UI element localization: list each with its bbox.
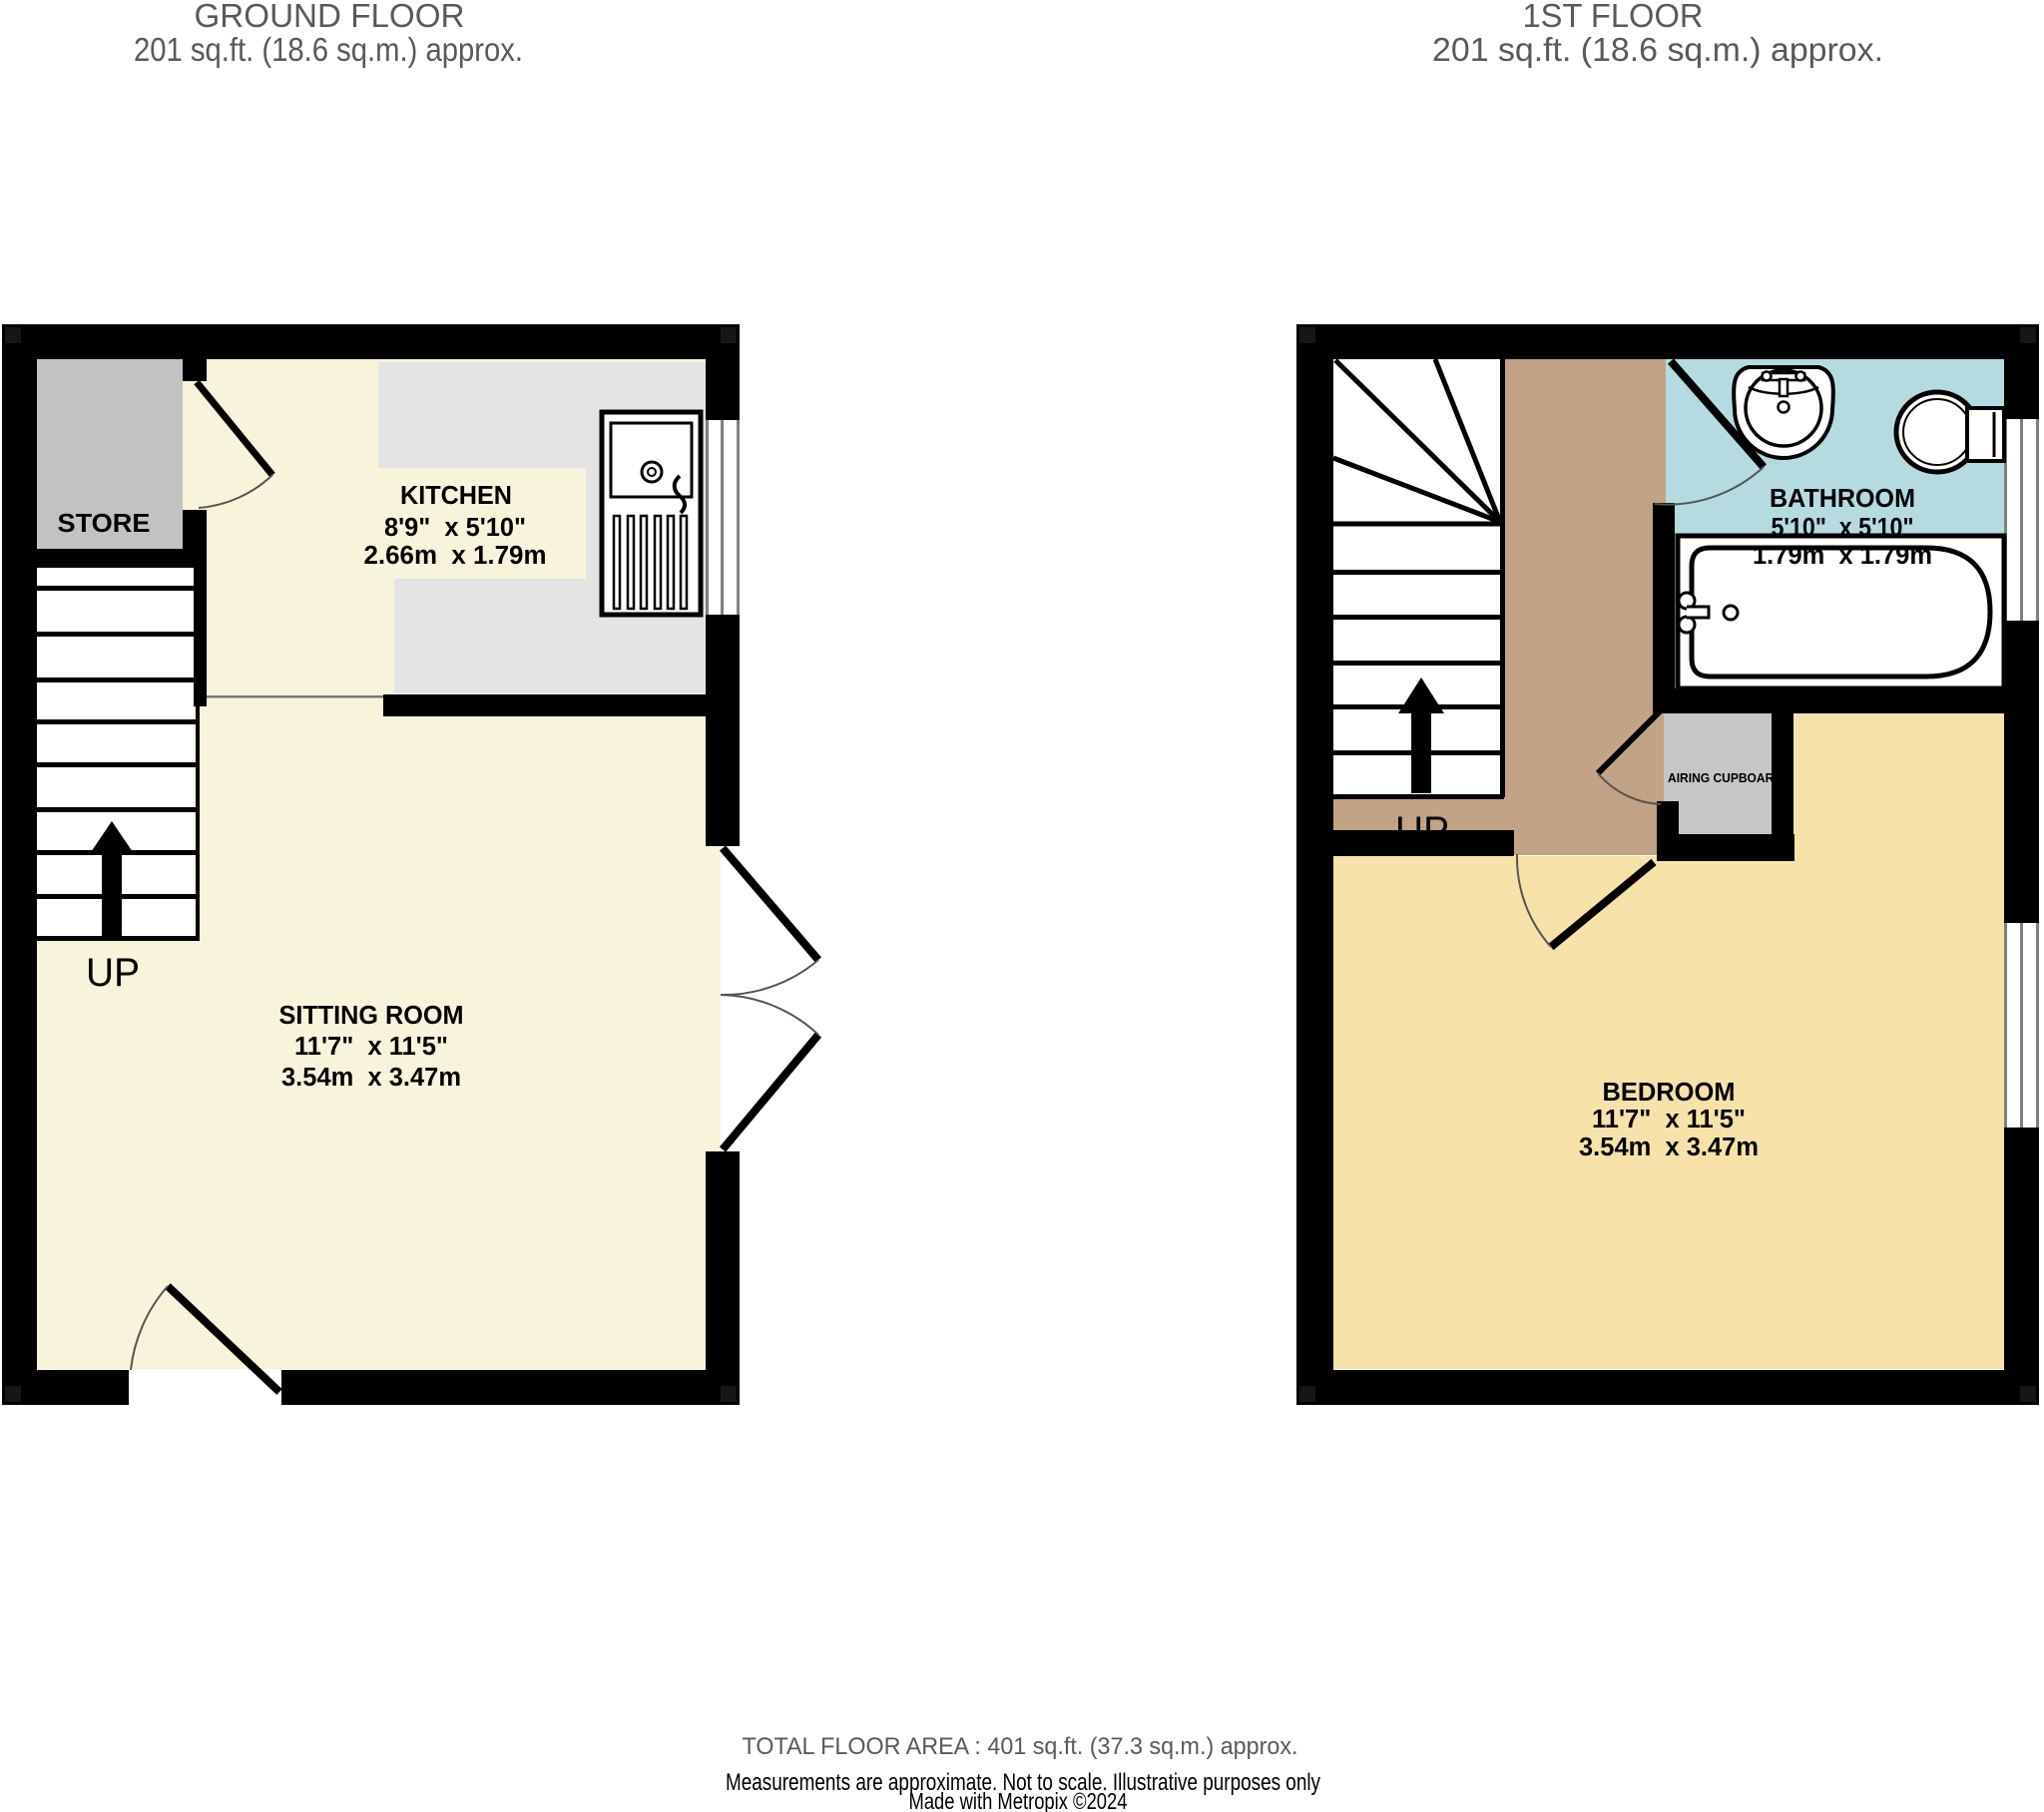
- svg-text:5'10" x 5'10": 5'10" x 5'10": [1772, 514, 1914, 542]
- svg-text:11'7" x 11'5": 11'7" x 11'5": [294, 1033, 448, 1061]
- svg-text:3.54m x 3.47m: 3.54m x 3.47m: [281, 1064, 461, 1092]
- svg-text:BEDROOM: BEDROOM: [1603, 1079, 1736, 1107]
- svg-text:11'7" x 11'5": 11'7" x 11'5": [1592, 1106, 1746, 1133]
- svg-text:8'9" x 5'10": 8'9" x 5'10": [384, 514, 526, 542]
- svg-text:STORE: STORE: [58, 510, 151, 538]
- svg-text:TOTAL FLOOR AREA : 401 sq.ft.: TOTAL FLOOR AREA : 401 sq.ft. (37.3 sq.m…: [743, 1733, 1298, 1760]
- svg-text:SITTING ROOM: SITTING ROOM: [279, 1002, 464, 1030]
- svg-text:1.79m x 1.79m: 1.79m x 1.79m: [1753, 542, 1932, 570]
- svg-text:Made with Metropix ©2024: Made with Metropix ©2024: [909, 1788, 1128, 1812]
- svg-text:AIRING CUPBOARD: AIRING CUPBOARD: [1668, 770, 1783, 785]
- svg-text:BATHROOM: BATHROOM: [1770, 485, 1915, 513]
- svg-text:2.66m x 1.79m: 2.66m x 1.79m: [364, 542, 547, 570]
- svg-text:GROUND FLOOR: GROUND FLOOR: [195, 0, 465, 34]
- svg-text:UP: UP: [86, 951, 140, 995]
- svg-text:201 sq.ft. (18.6 sq.m.) approx: 201 sq.ft. (18.6 sq.m.) approx.: [134, 31, 523, 68]
- svg-text:1ST FLOOR: 1ST FLOOR: [1523, 0, 1704, 34]
- svg-text:3.54m x 3.47m: 3.54m x 3.47m: [1579, 1133, 1759, 1161]
- svg-text:KITCHEN: KITCHEN: [400, 482, 512, 510]
- svg-text:201 sq.ft. (18.6 sq.m.) approx: 201 sq.ft. (18.6 sq.m.) approx.: [1432, 31, 1883, 68]
